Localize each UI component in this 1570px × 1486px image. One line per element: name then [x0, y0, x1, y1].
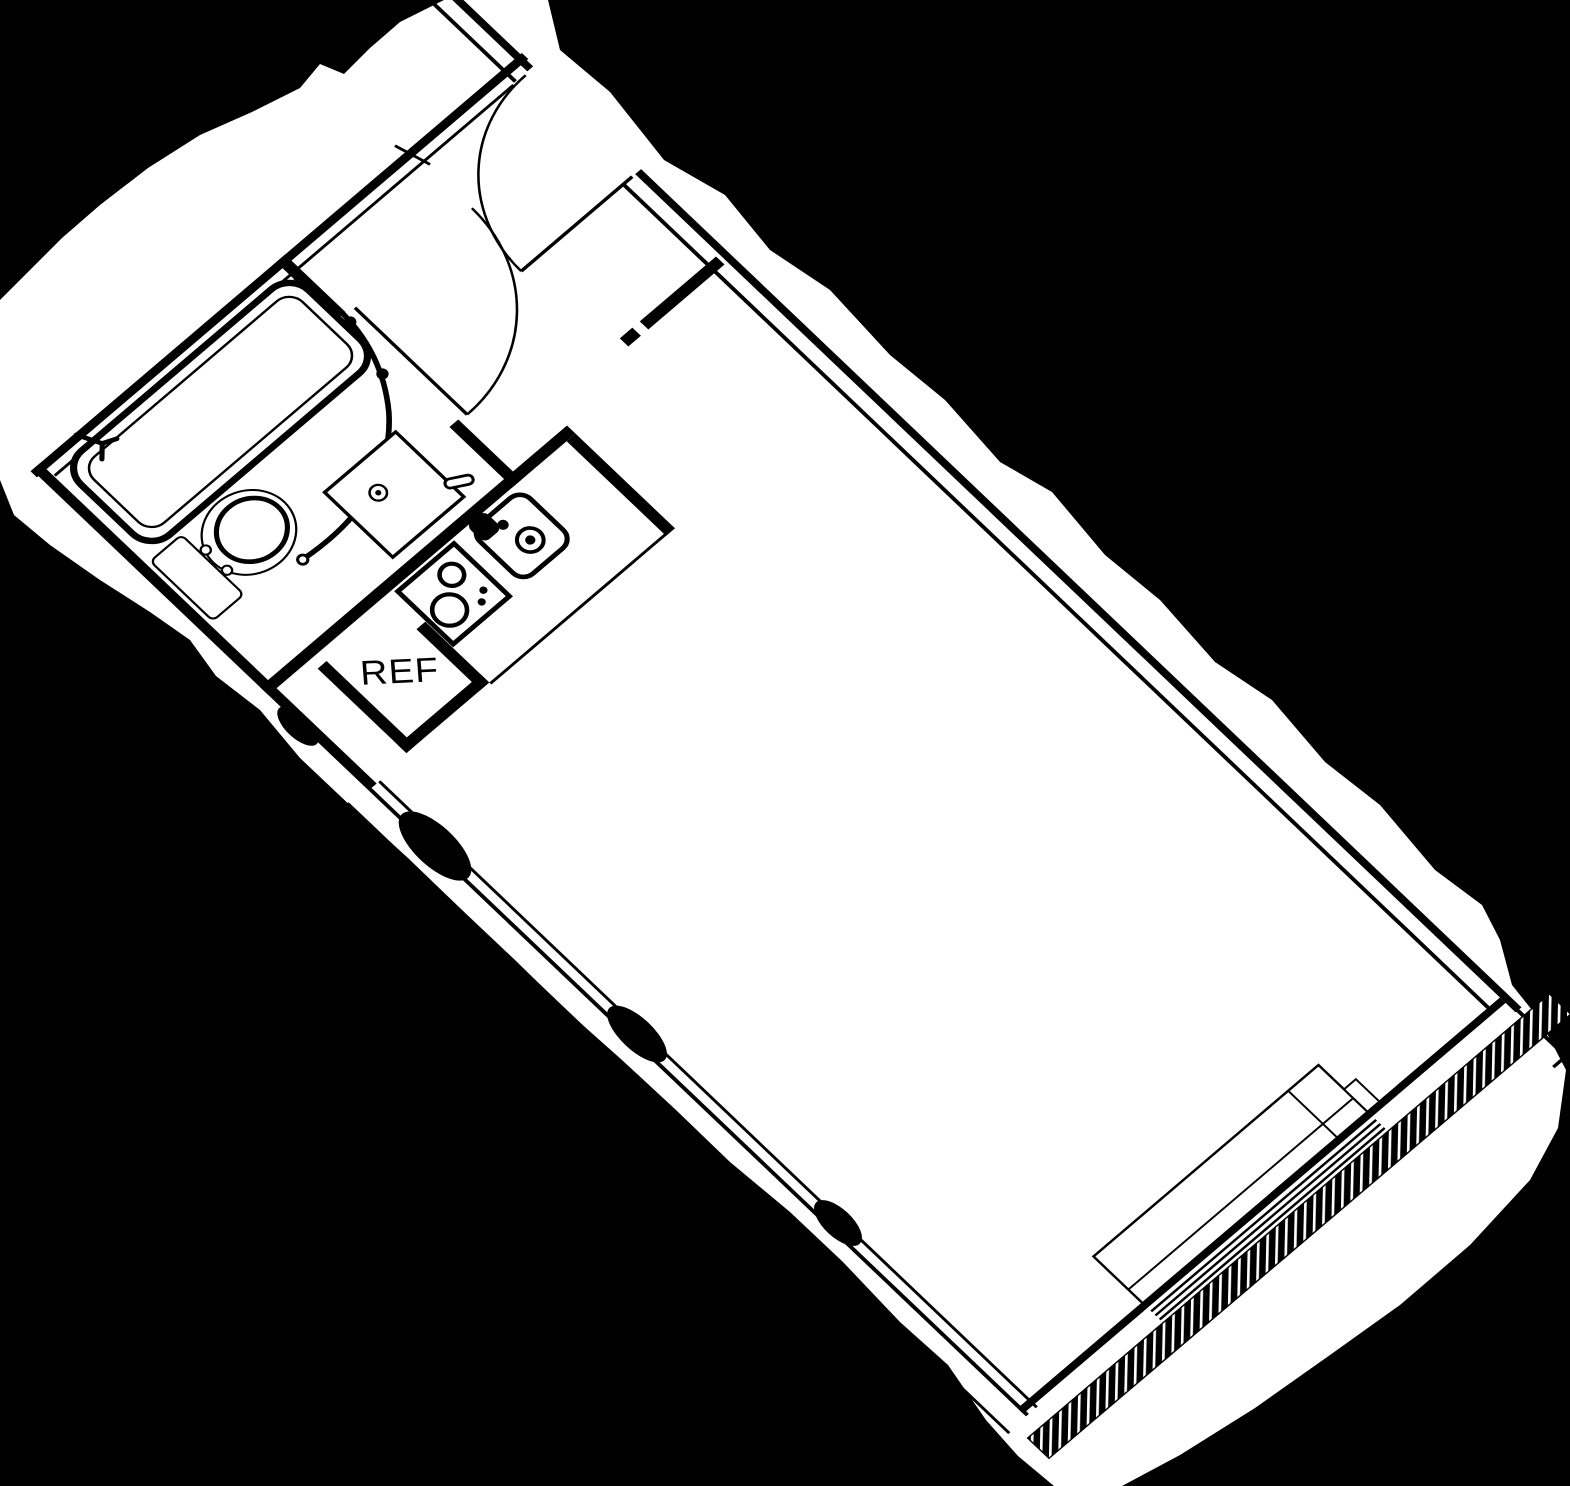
paper-blob	[0, 0, 1566, 1486]
refrigerator-label: REF	[359, 650, 441, 692]
floorplan-svg: REF	[0, 0, 1570, 1486]
floorplan-scan: REF	[0, 0, 1570, 1486]
